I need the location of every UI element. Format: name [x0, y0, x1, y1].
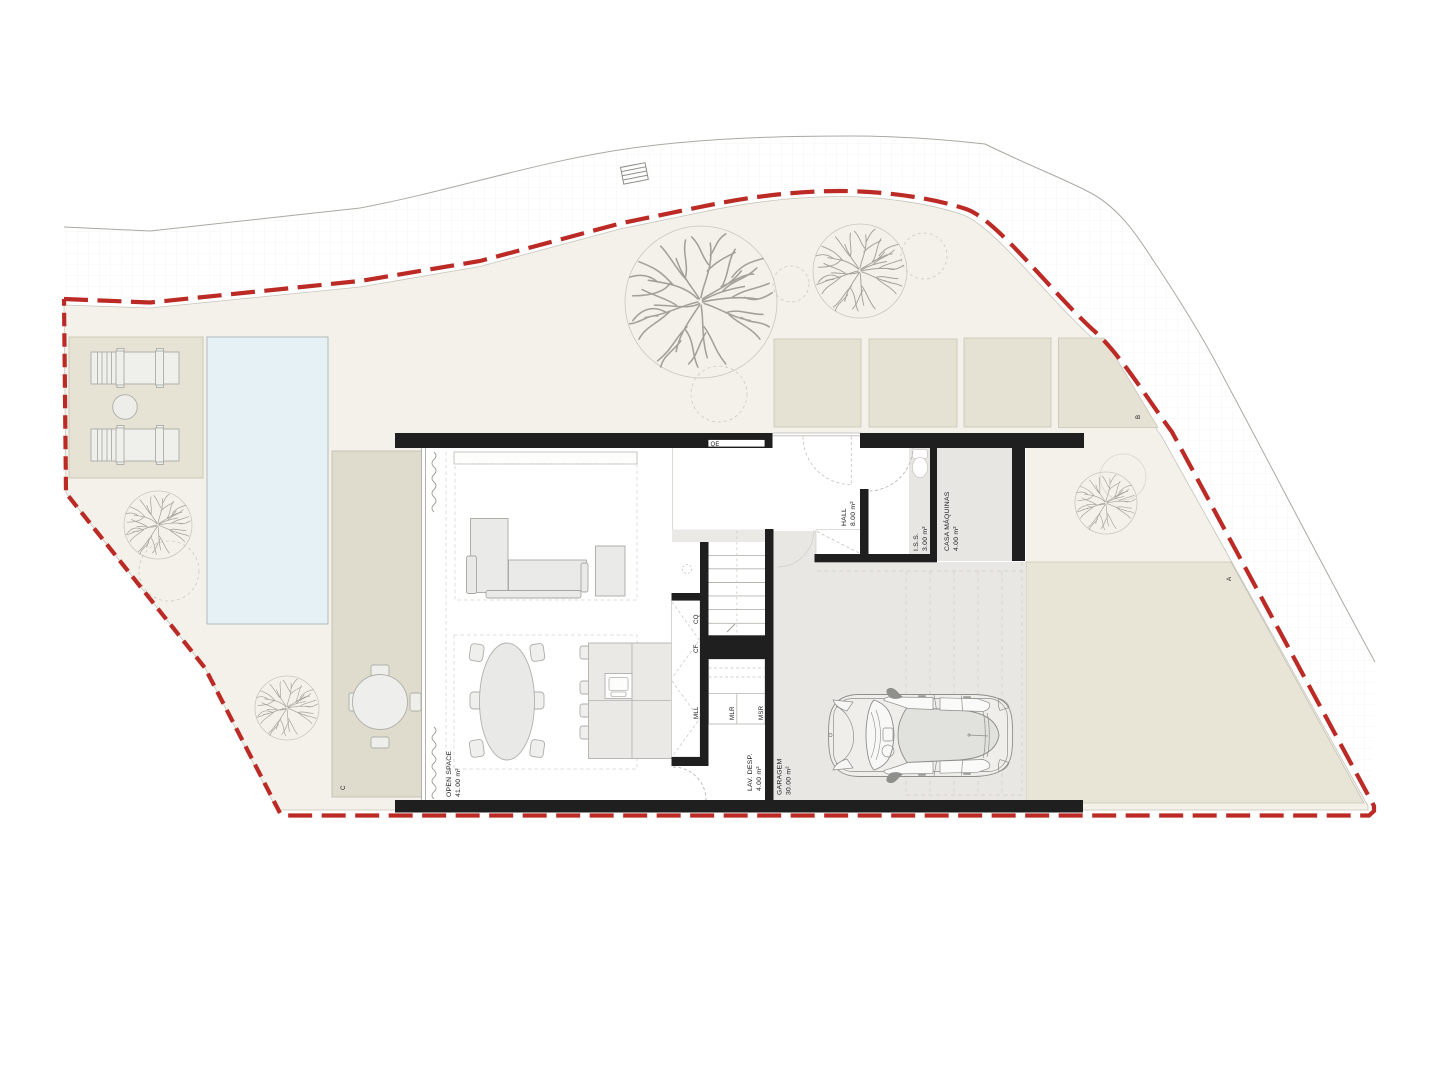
svg-text:QE: QE [711, 442, 720, 448]
svg-text:CF: CF [693, 644, 700, 653]
svg-text:MSR: MSR [758, 705, 765, 720]
svg-text:41.00 m²: 41.00 m² [455, 768, 462, 797]
svg-text:CQ: CQ [693, 614, 700, 624]
svg-text:LAV. DESP.: LAV. DESP. [747, 753, 754, 791]
svg-text:B: B [1135, 415, 1142, 419]
svg-text:A: A [1226, 576, 1233, 581]
svg-text:8.00 m²: 8.00 m² [850, 501, 857, 526]
svg-text:4.00 m²: 4.00 m² [756, 766, 763, 791]
svg-text:CASA MÁQUINAS: CASA MÁQUINAS [942, 491, 951, 551]
svg-text:3.00 m²: 3.00 m² [922, 526, 929, 551]
svg-text:I.S.S.: I.S.S. [913, 533, 920, 551]
svg-text:HALL: HALL [841, 508, 848, 526]
svg-text:GARAGEM: GARAGEM [777, 758, 784, 795]
svg-text:MLR: MLR [729, 706, 736, 720]
svg-text:C: C [340, 785, 347, 790]
svg-text:30.00 m²: 30.00 m² [786, 766, 793, 795]
svg-text:OPEN SPACE: OPEN SPACE [446, 751, 453, 797]
svg-text:MLL: MLL [693, 706, 700, 719]
svg-text:4.00 m²: 4.00 m² [953, 526, 960, 551]
